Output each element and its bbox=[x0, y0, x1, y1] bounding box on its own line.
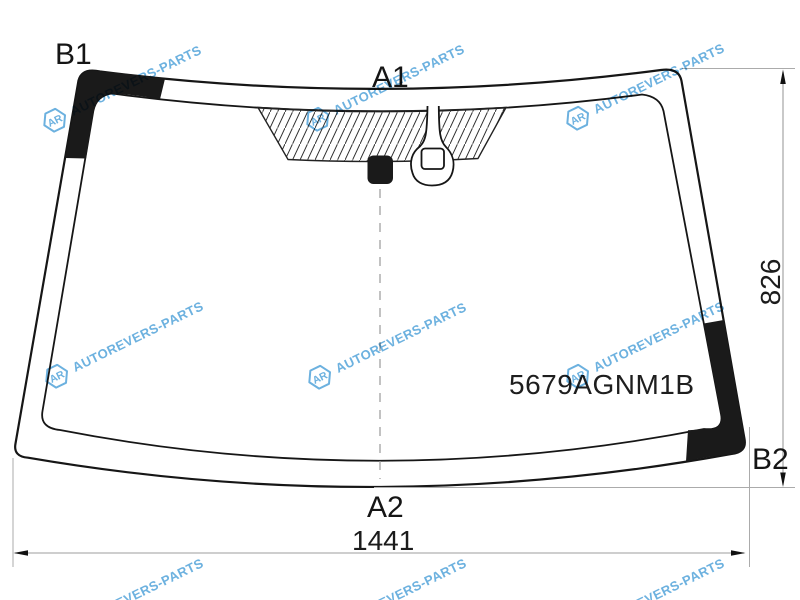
callout-a2: A2 bbox=[367, 493, 404, 523]
windshield-diagram-page: B1 A1 B2 A2 826 1441 5679AGNM1B AR AUTOR… bbox=[0, 0, 800, 600]
rain-sensor-window bbox=[422, 149, 445, 170]
dimension-height-label: 826 bbox=[757, 252, 785, 312]
part-number: 5679AGNM1B bbox=[509, 369, 695, 401]
frit-band-hatch bbox=[258, 108, 506, 162]
mirror-mount bbox=[368, 156, 394, 185]
dimension-width-label: 1441 bbox=[352, 527, 414, 555]
callout-b1: B1 bbox=[55, 40, 92, 70]
callout-a1: A1 bbox=[372, 63, 409, 93]
callout-b2: B2 bbox=[752, 445, 789, 475]
